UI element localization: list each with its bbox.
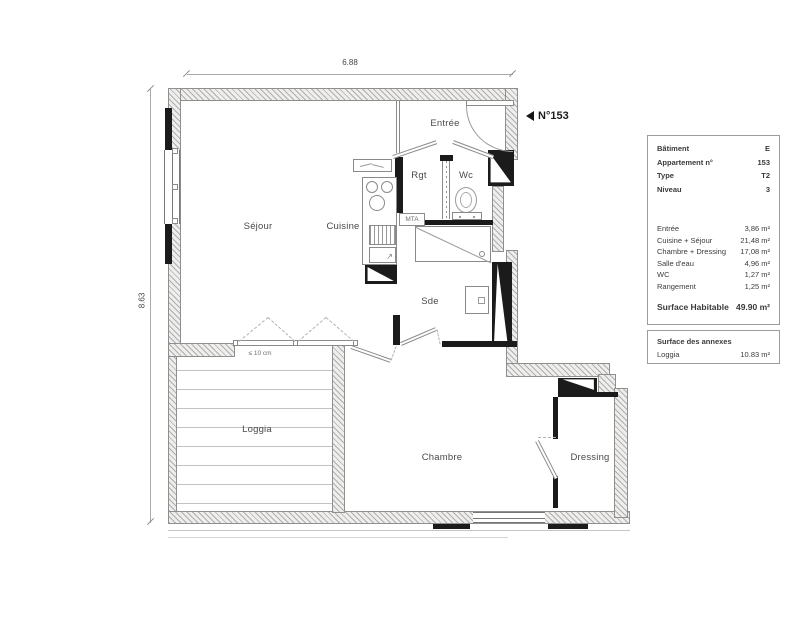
wall-bottom	[168, 511, 630, 524]
detail-value: E	[765, 142, 770, 156]
entrance-door-swing-arc	[466, 106, 513, 152]
room-label-sde: Sde	[416, 296, 444, 307]
detail-value: 3	[766, 183, 770, 197]
door-hinge	[233, 340, 238, 346]
window-handle	[172, 184, 178, 190]
area-row: Cuisine + Séjour 21,48 m²	[657, 235, 770, 247]
dimension-width-label: 6.88	[320, 58, 380, 67]
unit-number-label: N°153	[538, 110, 569, 122]
mta-box: MTA	[399, 213, 425, 226]
toilet-tank	[452, 212, 482, 220]
duct-icon	[365, 264, 397, 284]
area-row: Chambre + Dressing 17,08 m²	[657, 246, 770, 258]
wall-loggia-left	[168, 344, 177, 512]
detail-row: Appartement n° 153	[657, 156, 770, 170]
detail-label: Niveau	[657, 183, 682, 197]
wall-run-horizontal	[506, 363, 610, 377]
detail-value: T2	[761, 169, 770, 183]
kitchen-sink-bowl	[366, 181, 378, 193]
dimension-tick	[509, 70, 516, 77]
dimension-height-label: 8.63	[138, 281, 147, 321]
sde-door-swing	[437, 329, 441, 344]
washing-machine	[465, 286, 489, 314]
wall-right-mid	[492, 186, 504, 252]
detail-label: Appartement n°	[657, 156, 713, 170]
ground-line	[168, 530, 630, 531]
area-label: Rangement	[657, 281, 696, 293]
area-value: 1,27 m²	[745, 269, 770, 281]
arrow-icon: ↗	[386, 252, 393, 261]
wall-black-segment	[165, 224, 172, 264]
area-value: 3,86 m²	[745, 223, 770, 235]
window-clearance-note: ≤ 10 cm	[230, 350, 290, 357]
duct-icon	[558, 378, 597, 392]
detail-row: Niveau 3	[657, 183, 770, 197]
french-door-swing	[326, 317, 355, 342]
wall-dressing-left	[553, 476, 558, 508]
detail-value: 153	[757, 156, 770, 170]
area-label: Salle d'eau	[657, 258, 694, 270]
partition-strip	[442, 161, 450, 219]
area-row: WC 1,27 m²	[657, 269, 770, 281]
area-label: Entrée	[657, 223, 679, 235]
french-door-swing	[239, 317, 269, 342]
duct-icon	[492, 262, 512, 345]
area-value: 21,48 m²	[740, 235, 770, 247]
annex-row: Loggia 10.83 m²	[657, 349, 770, 361]
total-row: Surface Habitable 49.90 m²	[657, 301, 770, 314]
room-label-chambre: Chambre	[412, 452, 472, 463]
shower-drain	[479, 251, 485, 257]
wall-entree-left	[396, 101, 400, 153]
annex-panel: Surface des annexes Loggia 10.83 m²	[647, 330, 780, 364]
area-value: 4,96 m²	[745, 258, 770, 270]
room-label-cuisine: Cuisine	[315, 221, 371, 232]
room-label-wc: Wc	[452, 170, 480, 181]
wall-loggia-right	[332, 343, 345, 513]
dimension-tick	[147, 518, 154, 525]
dressing-door-swing	[538, 437, 556, 438]
room-label-dressing: Dressing	[560, 452, 620, 463]
french-door-swing	[268, 317, 296, 342]
total-value: 49.90 m²	[736, 301, 770, 314]
floor-plan-page: 6.88 8.63	[0, 0, 800, 618]
detail-label: Type	[657, 169, 674, 183]
kitchen-sink-bowl	[381, 181, 393, 193]
detail-label: Bâtiment	[657, 142, 689, 156]
arrow-left-icon	[526, 111, 534, 121]
apartment-info-panel: Bâtiment E Appartement n° 153 Type T2 Ni…	[647, 135, 780, 325]
annex-label: Loggia	[657, 349, 680, 361]
area-value: 17,08 m²	[740, 246, 770, 258]
dimension-width-line	[187, 74, 513, 75]
window-handle	[172, 218, 178, 224]
french-door-leaf	[296, 340, 355, 346]
annex-value: 10.83 m²	[740, 349, 770, 361]
wall-sde-left	[393, 315, 400, 345]
area-row: Salle d'eau 4,96 m²	[657, 258, 770, 270]
total-label: Surface Habitable	[657, 301, 729, 314]
kitchen-appliance	[369, 225, 396, 245]
ground-line	[168, 537, 508, 538]
toilet-bowl	[455, 187, 477, 213]
room-label-loggia: Loggia	[227, 424, 287, 435]
wall-dressing-left	[553, 397, 558, 439]
dimension-height-line	[150, 89, 151, 523]
wall-black-segment	[433, 524, 470, 529]
area-row: Entrée 3,86 m²	[657, 223, 770, 235]
room-label-rgt: Rgt	[403, 170, 435, 181]
window-chambre	[473, 512, 545, 523]
wall-rgt-wc-bottom	[418, 220, 493, 225]
room-label-sejour: Séjour	[228, 221, 288, 232]
french-door-swing	[298, 317, 327, 342]
area-value: 1,25 m²	[745, 281, 770, 293]
wall-black-segment	[165, 108, 172, 150]
wall-dressing-top	[558, 392, 618, 397]
annex-title: Surface des annexes	[657, 336, 770, 347]
area-label: Chambre + Dressing	[657, 246, 726, 258]
unit-number: N°153	[526, 110, 569, 122]
wall-black-segment	[548, 524, 588, 529]
area-label: WC	[657, 269, 670, 281]
detail-row: Type T2	[657, 169, 770, 183]
kitchen-hood	[353, 159, 392, 172]
sde-door-leaf	[400, 327, 437, 346]
french-door-leaf	[237, 340, 296, 346]
detail-row: Bâtiment E	[657, 142, 770, 156]
window-handle	[172, 148, 178, 154]
area-label: Cuisine + Séjour	[657, 235, 712, 247]
area-row: Rangement 1,25 m²	[657, 281, 770, 293]
chambre-door-leaf	[350, 345, 391, 363]
wall-chambre-top	[442, 341, 517, 347]
chambre-door-swing	[391, 346, 397, 360]
kitchen-appliance: ↗	[369, 247, 396, 263]
room-label-entree: Entrée	[425, 118, 465, 129]
dressing-door-leaf	[535, 440, 558, 479]
kitchen-hob	[369, 195, 385, 211]
